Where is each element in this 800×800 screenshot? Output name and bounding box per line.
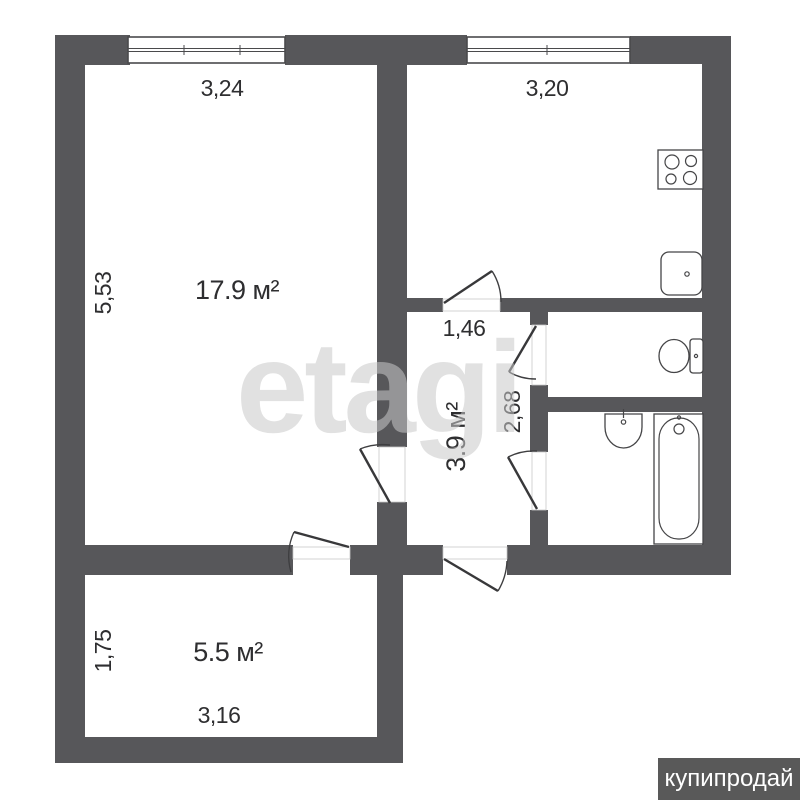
kitchen-window bbox=[467, 37, 630, 63]
wall-segment bbox=[407, 298, 443, 312]
wall-segment bbox=[55, 737, 403, 763]
label-small-room-depth: 1,75 bbox=[90, 630, 116, 673]
label-small-room-width: 3,16 bbox=[198, 702, 241, 728]
wall-segment bbox=[500, 298, 731, 312]
door-leaf bbox=[444, 559, 498, 591]
window-icon bbox=[467, 37, 630, 63]
kitchen-sink-icon bbox=[661, 252, 702, 295]
door-arc bbox=[498, 561, 507, 591]
wall-segment bbox=[530, 385, 548, 452]
toilet-icon bbox=[659, 339, 703, 373]
kitchen-door bbox=[443, 271, 501, 311]
agency-watermark: etagi bbox=[236, 322, 519, 452]
living-room-window bbox=[128, 37, 285, 63]
wall-segment bbox=[530, 312, 548, 325]
window-icon bbox=[128, 37, 285, 63]
site-logo-badge: купипродай bbox=[658, 758, 800, 800]
washbasin-icon bbox=[605, 409, 642, 448]
wall-segment bbox=[55, 545, 293, 575]
floor-plan-page: 3,24 3,20 17.9 м² 5,53 1,46 3.9 м² 2,68 … bbox=[0, 0, 800, 800]
bathtub-icon bbox=[654, 414, 703, 544]
door-leaf bbox=[294, 532, 349, 547]
wall-segment bbox=[377, 575, 403, 763]
label-small-room-area: 5.5 м² bbox=[193, 637, 263, 667]
label-kitchen-width: 3,20 bbox=[526, 75, 569, 101]
wall-segment bbox=[507, 545, 731, 575]
label-living-room-width: 3,24 bbox=[201, 75, 244, 101]
label-living-room-depth: 5,53 bbox=[90, 272, 116, 315]
door-arc bbox=[492, 271, 501, 302]
door-leaf bbox=[444, 271, 492, 303]
wall-segment bbox=[285, 35, 467, 65]
entrance-door bbox=[443, 547, 507, 591]
label-living-room-area: 17.9 м² bbox=[195, 275, 280, 305]
stove-icon bbox=[658, 150, 703, 189]
small-room-door bbox=[289, 532, 350, 572]
wall-segment bbox=[350, 545, 443, 575]
wall-segment bbox=[55, 35, 85, 763]
wall-segment bbox=[548, 397, 702, 412]
